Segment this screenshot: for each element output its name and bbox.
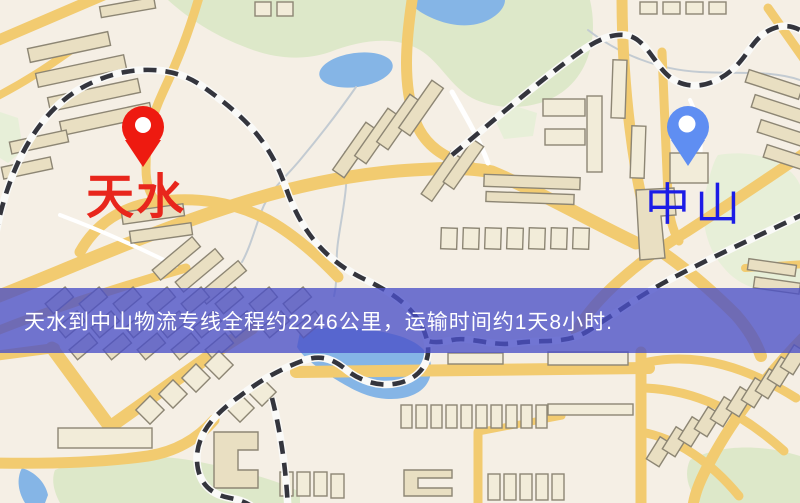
- route-info-banner: 天水到中山物流专线全程约2246公里，运输时间约1天8小时.: [0, 288, 800, 353]
- map-canvas: [0, 0, 800, 503]
- route-info-text: 天水到中山物流专线全程约2246公里，运输时间约1天8小时.: [0, 306, 613, 336]
- origin-label: 天水: [86, 174, 186, 222]
- origin-pin-hole: [135, 117, 151, 133]
- logistics-route-map: 天水 中山 天水到中山物流专线全程约2246公里，运输时间约1天8小时.: [0, 0, 800, 503]
- origin-pin-icon: [122, 106, 164, 167]
- destination-pin-hole: [679, 116, 696, 133]
- destination-label: 中山: [645, 182, 745, 227]
